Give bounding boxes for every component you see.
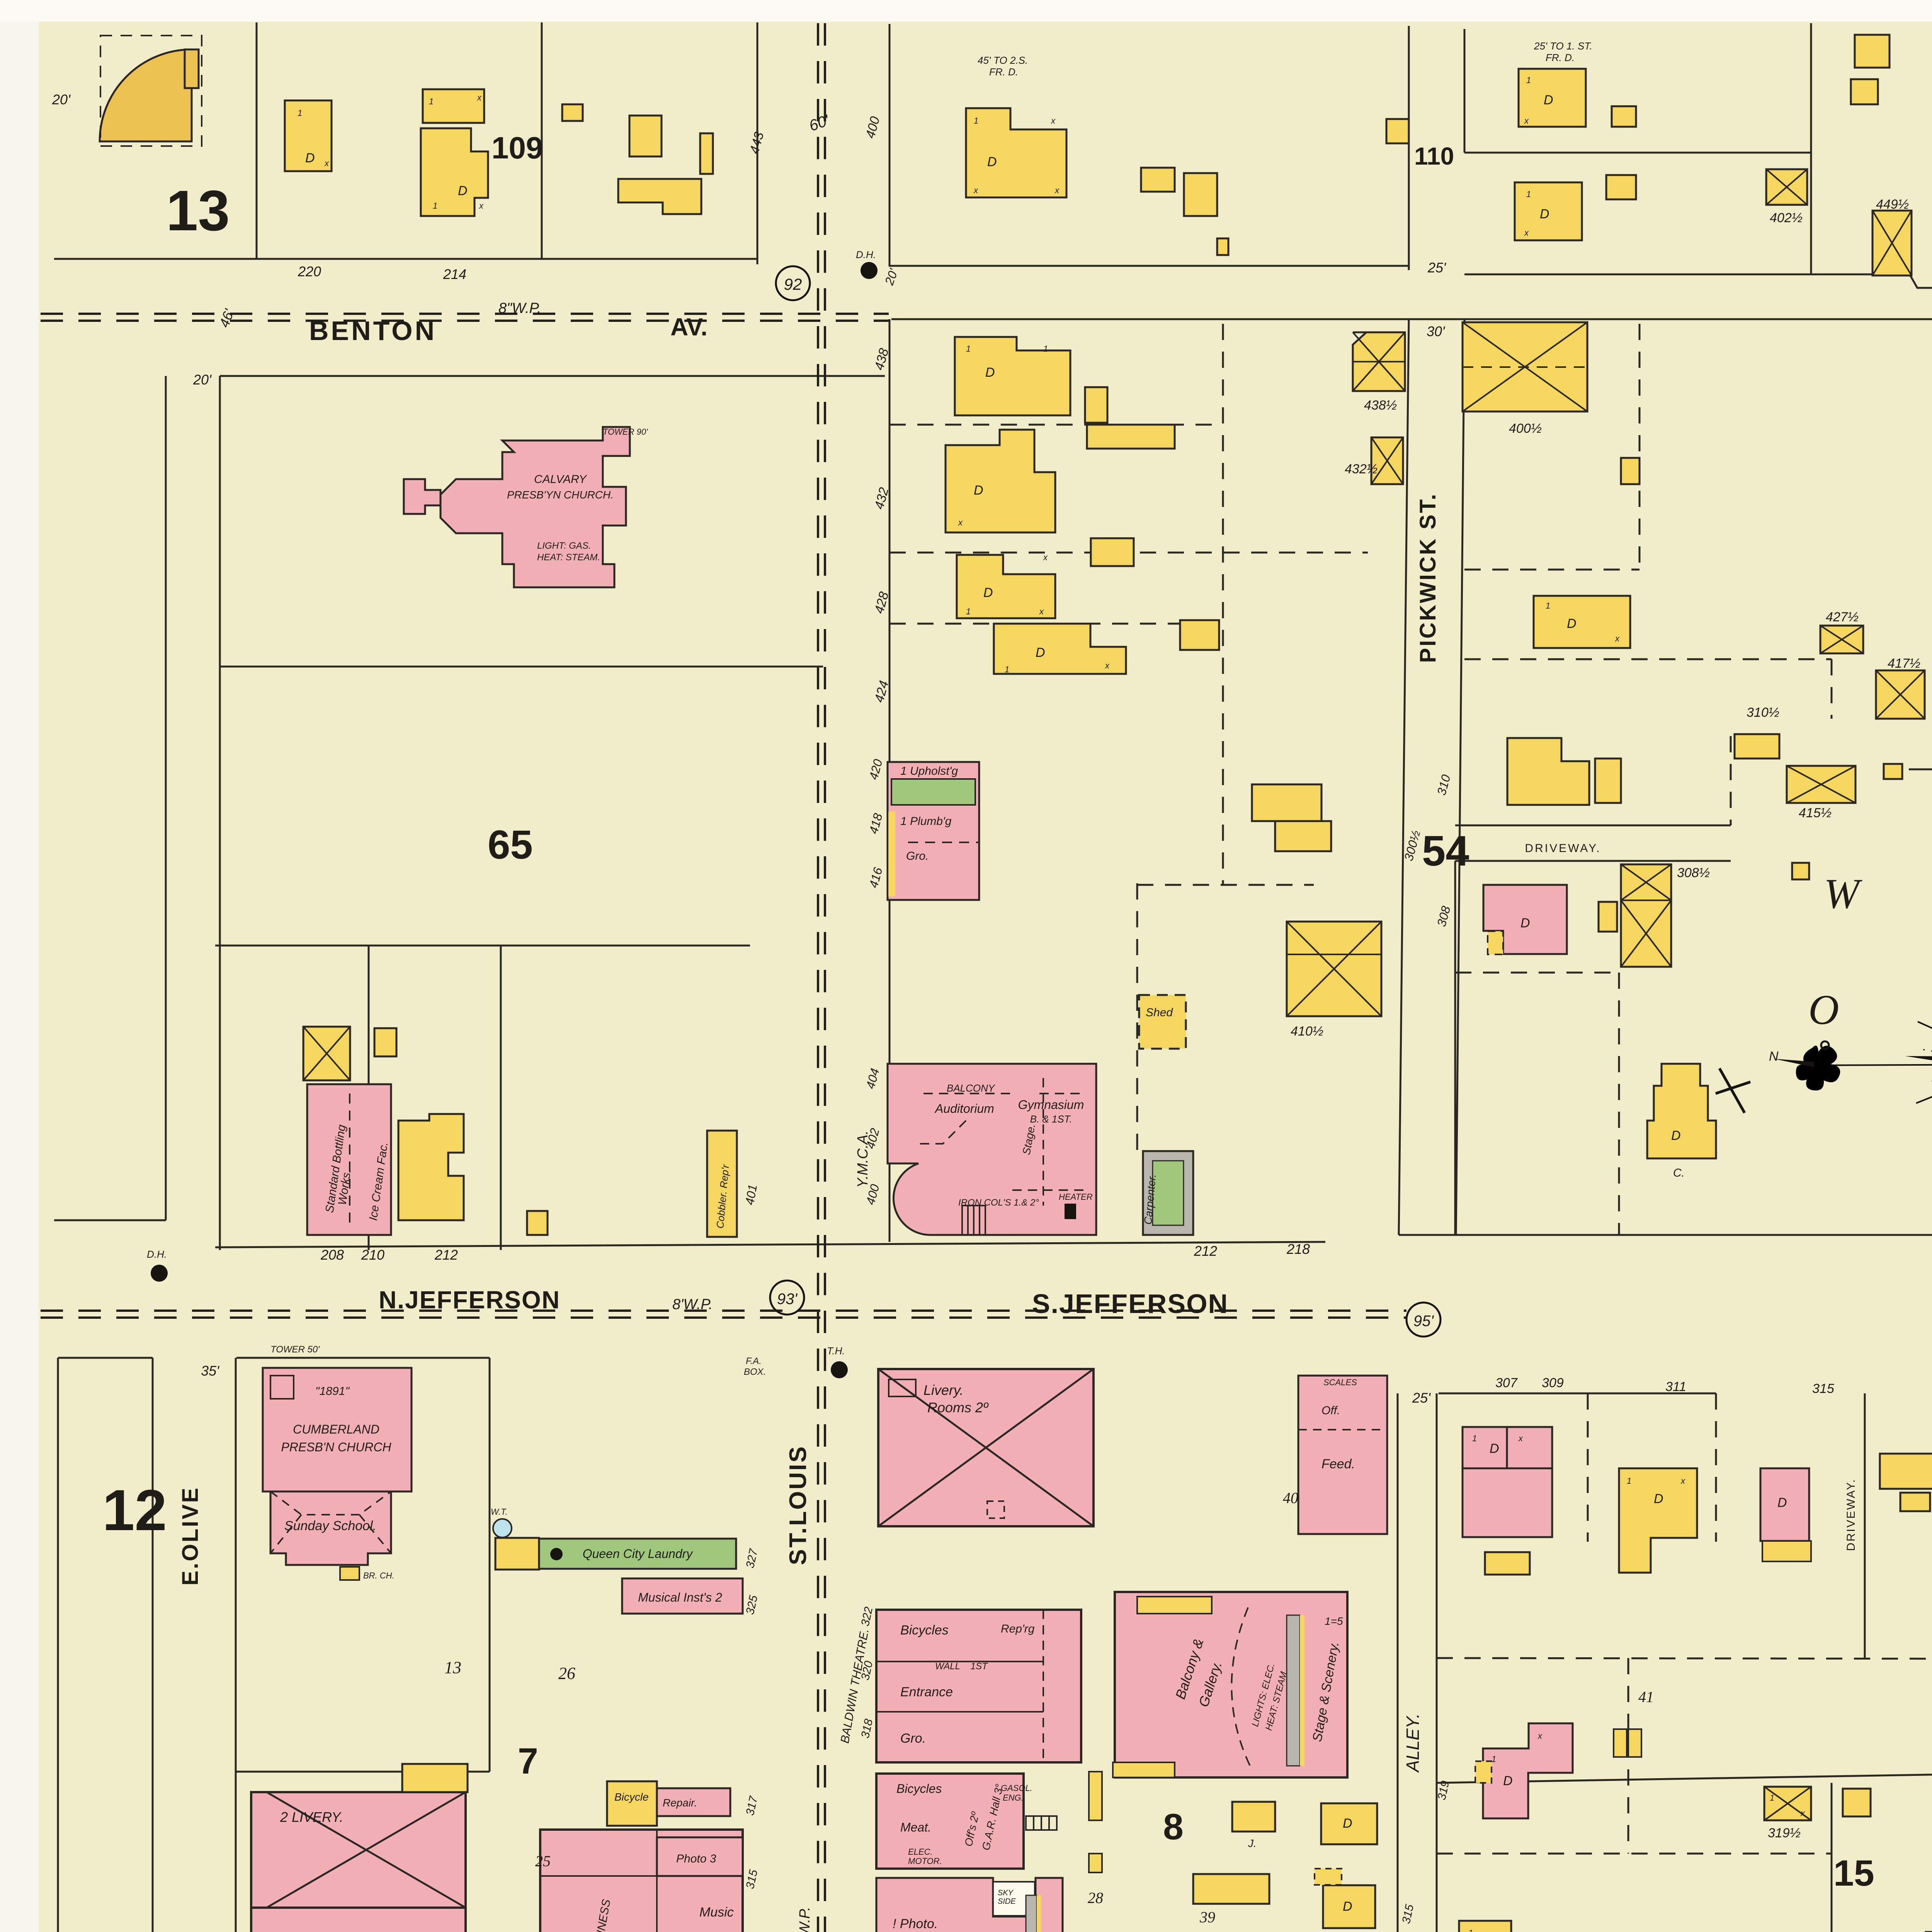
- svg-text:210: 210: [361, 1247, 384, 1263]
- svg-text:20': 20': [52, 92, 71, 107]
- svg-text:30': 30': [1427, 323, 1445, 339]
- svg-text:LIGHT: GAS.: LIGHT: GAS.: [537, 541, 591, 551]
- svg-text:417½: 417½: [1888, 656, 1920, 671]
- svg-text:26: 26: [558, 1664, 575, 1683]
- svg-text:TOWER 90': TOWER 90': [603, 427, 648, 437]
- svg-text:"1891": "1891": [315, 1385, 350, 1398]
- svg-text:S.JEFFERSON: S.JEFFERSON: [1032, 1289, 1228, 1319]
- svg-text:54: 54: [1422, 827, 1469, 875]
- svg-text:214: 214: [443, 266, 466, 282]
- svg-text:F.A.: F.A.: [746, 1356, 762, 1366]
- svg-text:1 Plumb'g: 1 Plumb'g: [900, 815, 952, 828]
- svg-text:1=5: 1=5: [1325, 1615, 1343, 1627]
- svg-text:D: D: [1343, 1816, 1352, 1831]
- svg-text:400½: 400½: [1509, 421, 1542, 436]
- svg-text:T.H.: T.H.: [827, 1345, 845, 1357]
- svg-text:D: D: [1343, 1899, 1352, 1914]
- svg-text:1: 1: [1770, 1793, 1774, 1803]
- svg-text:40: 40: [1283, 1489, 1298, 1507]
- svg-text:20': 20': [193, 372, 212, 388]
- svg-text:Music: Music: [699, 1905, 734, 1920]
- svg-text:Entrance: Entrance: [900, 1685, 953, 1699]
- svg-text:E.OLIVE: E.OLIVE: [178, 1486, 203, 1586]
- svg-text:D: D: [983, 585, 993, 600]
- svg-text:DRIVEWAY.: DRIVEWAY.: [1525, 842, 1601, 855]
- svg-text:D: D: [1036, 645, 1045, 660]
- svg-text:x: x: [1800, 1808, 1805, 1818]
- svg-text:GASOL.: GASOL.: [1001, 1783, 1032, 1793]
- svg-text:35': 35': [201, 1363, 219, 1379]
- svg-text:Gro.: Gro.: [906, 850, 929, 862]
- svg-text:WALL 1ST: WALL 1ST: [935, 1661, 988, 1672]
- svg-text:D: D: [1490, 1441, 1499, 1456]
- svg-text:Auditorium: Auditorium: [934, 1102, 994, 1116]
- svg-text:x: x: [1524, 228, 1529, 238]
- svg-text:Musical Inst's 2: Musical Inst's 2: [638, 1590, 722, 1604]
- svg-text:x: x: [1524, 116, 1529, 126]
- svg-text:x: x: [477, 93, 482, 102]
- svg-text:MOTOR.: MOTOR.: [908, 1856, 942, 1866]
- svg-text:Shed: Shed: [1146, 1006, 1173, 1019]
- svg-text:x: x: [1615, 634, 1620, 643]
- svg-text:SCALES: SCALES: [1323, 1378, 1357, 1387]
- svg-text:ST.LOUIS: ST.LOUIS: [785, 1445, 811, 1565]
- svg-text:438½: 438½: [1364, 398, 1397, 413]
- svg-text:1: 1: [966, 344, 971, 354]
- svg-text:D: D: [1567, 616, 1577, 631]
- svg-text:x: x: [324, 158, 329, 168]
- svg-text:x: x: [479, 201, 484, 211]
- svg-text:W.T.: W.T.: [491, 1507, 508, 1517]
- svg-text:D: D: [1777, 1495, 1787, 1510]
- svg-text:1: 1: [966, 607, 971, 616]
- svg-text:CALVARY: CALVARY: [534, 473, 587, 486]
- svg-text:x: x: [1105, 661, 1110, 670]
- svg-text:93': 93': [777, 1291, 798, 1308]
- svg-text:402½: 402½: [1770, 211, 1803, 225]
- svg-text:110: 110: [1414, 142, 1454, 170]
- svg-text:FR. D.: FR. D.: [989, 66, 1018, 78]
- svg-text:308½: 308½: [1677, 866, 1710, 880]
- svg-text:N: N: [1769, 1049, 1779, 1064]
- svg-text:! Photo.: ! Photo.: [893, 1917, 938, 1931]
- svg-text:307: 307: [1495, 1376, 1518, 1390]
- svg-text:92: 92: [784, 275, 802, 293]
- svg-text:Feed.: Feed.: [1321, 1457, 1355, 1471]
- svg-text:25' TO 1. ST.: 25' TO 1. ST.: [1534, 40, 1592, 52]
- svg-text:25': 25': [1412, 1390, 1431, 1406]
- svg-text:1 Upholst'g: 1 Upholst'g: [900, 765, 958, 777]
- svg-text:BENTON: BENTON: [309, 316, 437, 346]
- svg-text:AV.: AV.: [670, 313, 707, 341]
- svg-text:D: D: [458, 184, 468, 198]
- svg-text:Photo 3: Photo 3: [676, 1852, 716, 1865]
- svg-text:D: D: [985, 365, 995, 380]
- svg-text:Bicycle: Bicycle: [614, 1791, 649, 1803]
- svg-text:212: 212: [1194, 1243, 1217, 1259]
- svg-text:315: 315: [1812, 1381, 1834, 1396]
- svg-text:C.: C.: [1673, 1167, 1685, 1179]
- svg-text:SIDE: SIDE: [998, 1897, 1016, 1906]
- svg-text:15: 15: [1833, 1853, 1874, 1894]
- svg-text:8'W.P.: 8'W.P.: [672, 1296, 713, 1313]
- svg-text:BALCONY: BALCONY: [947, 1082, 995, 1094]
- svg-text:Queen City Laundry: Queen City Laundry: [583, 1547, 694, 1561]
- svg-text:427½: 427½: [1826, 610, 1859, 624]
- svg-text:410½: 410½: [1291, 1024, 1323, 1039]
- svg-text:2 LIVERY.: 2 LIVERY.: [280, 1809, 343, 1825]
- svg-text:Livery.: Livery.: [923, 1382, 963, 1398]
- svg-text:7: 7: [518, 1741, 538, 1782]
- svg-text:x: x: [973, 185, 978, 195]
- svg-text:x: x: [1680, 1476, 1685, 1486]
- svg-text:1: 1: [298, 108, 302, 118]
- svg-text:N.JEFFERSON: N.JEFFERSON: [379, 1286, 560, 1314]
- svg-text:25: 25: [535, 1852, 551, 1870]
- svg-text:D: D: [987, 155, 997, 169]
- svg-text:O: O: [1808, 986, 1839, 1033]
- svg-text:39: 39: [1199, 1908, 1215, 1926]
- svg-text:Meat.: Meat.: [900, 1820, 931, 1834]
- svg-text:8"W.P.: 8"W.P.: [498, 300, 541, 316]
- svg-text:1: 1: [1472, 1434, 1477, 1443]
- svg-text:x: x: [1054, 185, 1060, 195]
- svg-text:8: 8: [1163, 1806, 1184, 1847]
- svg-text:D: D: [974, 483, 983, 498]
- svg-text:HEAT: STEAM.: HEAT: STEAM.: [537, 552, 600, 563]
- svg-text:1: 1: [1526, 75, 1531, 85]
- svg-text:D.H.: D.H.: [147, 1248, 167, 1260]
- svg-text:Sunday School.: Sunday School.: [284, 1519, 376, 1533]
- svg-text:1: 1: [1492, 1754, 1496, 1764]
- svg-text:65: 65: [488, 822, 533, 867]
- svg-text:25': 25': [1427, 260, 1446, 276]
- svg-text:310½: 310½: [1747, 705, 1779, 720]
- svg-text:432½: 432½: [1345, 462, 1378, 476]
- svg-text:PRESB'N CHURCH: PRESB'N CHURCH: [281, 1440, 391, 1454]
- svg-text:BR. CH.: BR. CH.: [363, 1571, 395, 1580]
- svg-text:x: x: [1051, 116, 1056, 126]
- svg-text:13: 13: [166, 179, 230, 243]
- svg-text:Rooms 2º: Rooms 2º: [927, 1400, 989, 1415]
- svg-text:J.: J.: [1248, 1837, 1257, 1849]
- svg-text:PRESB'YN CHURCH.: PRESB'YN CHURCH.: [507, 489, 614, 501]
- svg-text:x: x: [1518, 1434, 1523, 1443]
- svg-text:ENG.: ENG.: [1003, 1793, 1024, 1803]
- svg-text:BOX.: BOX.: [744, 1367, 766, 1377]
- svg-text:Gymnasium: Gymnasium: [1018, 1098, 1084, 1112]
- svg-text:218: 218: [1286, 1241, 1310, 1257]
- svg-text:D: D: [1654, 1492, 1663, 1506]
- svg-text:D: D: [1540, 207, 1549, 221]
- svg-text:41: 41: [1638, 1688, 1654, 1706]
- svg-text:Repair.: Repair.: [663, 1797, 697, 1809]
- svg-text:x: x: [958, 518, 963, 527]
- svg-text:DRIVEWAY.: DRIVEWAY.: [1845, 1478, 1857, 1551]
- svg-text:PICKWICK ST.: PICKWICK ST.: [1415, 492, 1440, 663]
- svg-text:D: D: [1503, 1774, 1513, 1788]
- svg-text:95': 95': [1413, 1313, 1434, 1330]
- svg-text:1: 1: [1546, 601, 1550, 611]
- svg-text:CUMBERLAND: CUMBERLAND: [293, 1422, 379, 1436]
- svg-text:TOWER 50': TOWER 50': [270, 1344, 320, 1355]
- svg-text:x: x: [1039, 607, 1044, 616]
- svg-text:ELEC.: ELEC.: [908, 1847, 933, 1857]
- svg-text:Rep'rg: Rep'rg: [1001, 1622, 1035, 1635]
- svg-text:D: D: [1671, 1128, 1681, 1143]
- svg-text:Off.: Off.: [1321, 1404, 1340, 1417]
- svg-text:309: 309: [1542, 1376, 1564, 1390]
- svg-text:1: 1: [974, 116, 978, 126]
- svg-text:449½: 449½: [1876, 197, 1909, 212]
- svg-text:D: D: [305, 151, 315, 165]
- svg-text:45' TO 2.S.: 45' TO 2.S.: [978, 54, 1028, 66]
- svg-text:311: 311: [1665, 1379, 1686, 1394]
- svg-text:D.H.: D.H.: [856, 249, 876, 260]
- svg-text:D: D: [1544, 93, 1553, 107]
- svg-text:Gro.: Gro.: [900, 1731, 926, 1746]
- svg-text:x: x: [1537, 1731, 1543, 1741]
- svg-text:W: W: [1824, 870, 1862, 917]
- svg-text:B. & 1ST.: B. & 1ST.: [1030, 1113, 1072, 1125]
- svg-text:415½: 415½: [1799, 806, 1832, 820]
- svg-text:220: 220: [298, 264, 321, 279]
- svg-text:28: 28: [1088, 1889, 1103, 1906]
- svg-text:13: 13: [444, 1658, 461, 1677]
- svg-text:1: 1: [1043, 344, 1048, 354]
- svg-text:Bicycles: Bicycles: [896, 1782, 942, 1796]
- svg-text:D: D: [1520, 916, 1530, 930]
- svg-text:x: x: [1043, 553, 1048, 562]
- svg-text:319½: 319½: [1768, 1826, 1801, 1840]
- svg-text:1: 1: [1526, 189, 1531, 199]
- svg-text:Bicycles: Bicycles: [900, 1623, 949, 1638]
- svg-text:208: 208: [320, 1247, 344, 1263]
- svg-text:109: 109: [492, 131, 543, 165]
- svg-text:1: 1: [433, 201, 437, 211]
- svg-text:1: 1: [1468, 1928, 1473, 1932]
- svg-text:SKY: SKY: [998, 1889, 1014, 1897]
- svg-text:HEATER: HEATER: [1059, 1192, 1093, 1202]
- svg-text:1: 1: [429, 97, 434, 106]
- svg-text:8"W.P.: 8"W.P.: [797, 1907, 813, 1932]
- svg-text:12: 12: [102, 1478, 167, 1543]
- svg-text:1: 1: [1627, 1476, 1631, 1486]
- svg-text:FR. D.: FR. D.: [1546, 52, 1575, 63]
- svg-text:1: 1: [1005, 665, 1009, 674]
- svg-text:ALLEY.: ALLEY.: [1403, 1713, 1423, 1773]
- svg-text:212: 212: [434, 1247, 458, 1263]
